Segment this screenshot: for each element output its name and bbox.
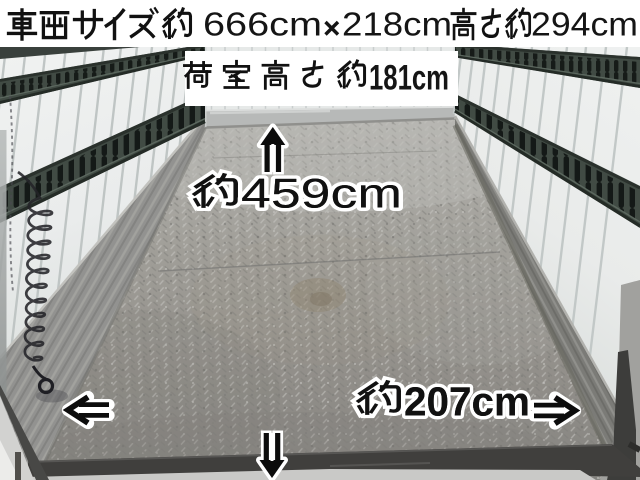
svg-text:207cm: 207cm bbox=[404, 379, 530, 425]
svg-text:666cm: 666cm bbox=[203, 6, 322, 43]
svg-text:218cm: 218cm bbox=[342, 6, 452, 43]
svg-text:294cm: 294cm bbox=[531, 6, 638, 43]
svg-text:459cm: 459cm bbox=[241, 170, 402, 217]
svg-text:181cm: 181cm bbox=[369, 59, 449, 98]
